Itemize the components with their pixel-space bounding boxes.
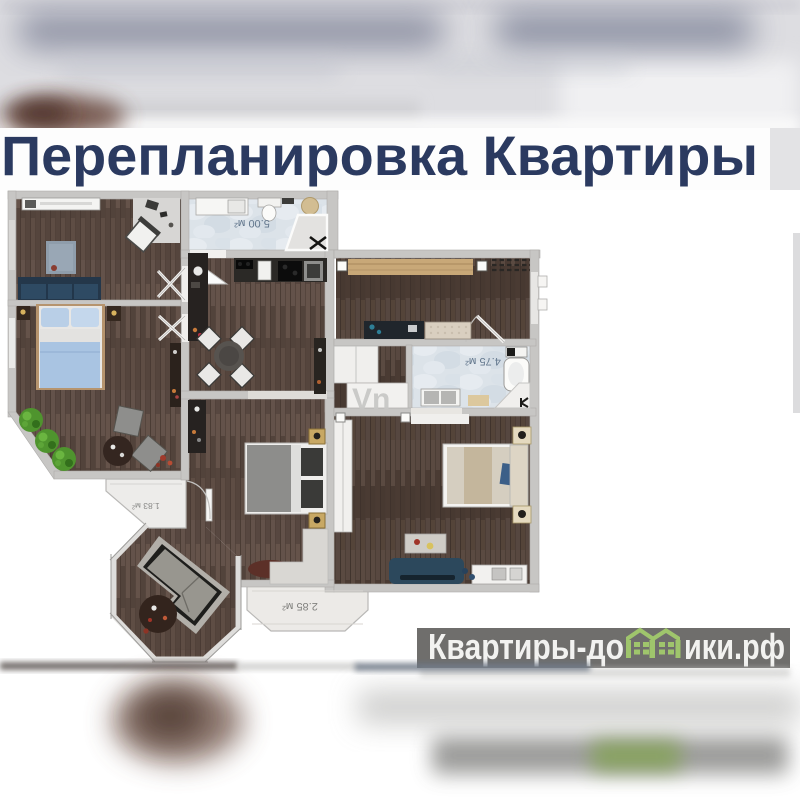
svg-text:Перепланировка Квартиры: Перепланировка Квартиры — [1, 124, 758, 187]
svg-text:5.00 м²: 5.00 м² — [234, 217, 270, 229]
svg-text:ики.рф: ики.рф — [684, 626, 785, 667]
svg-text:Vn: Vn — [352, 383, 390, 416]
svg-text:2.85 м²: 2.85 м² — [282, 600, 318, 612]
svg-text:Квартиры-до: Квартиры-до — [428, 626, 624, 667]
svg-text:1.83 м²: 1.83 м² — [132, 501, 160, 511]
svg-text:4.75 м²: 4.75 м² — [465, 355, 501, 367]
